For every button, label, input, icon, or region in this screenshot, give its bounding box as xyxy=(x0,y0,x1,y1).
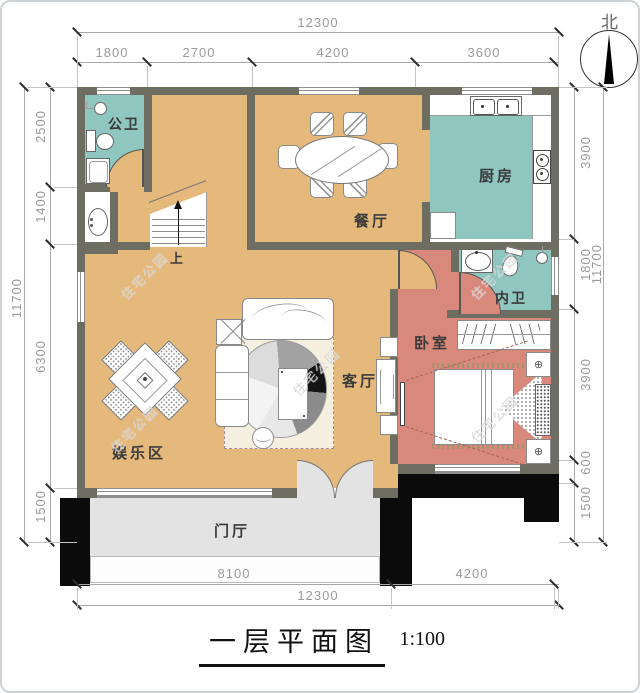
ext-line xyxy=(391,588,392,609)
dim-top-seg-0: 1800 xyxy=(82,45,142,60)
ext-line xyxy=(28,542,77,543)
window-dining-top xyxy=(299,87,359,95)
wall-ensuite-left xyxy=(451,250,459,272)
dim-top-seg-3: 3600 xyxy=(454,45,514,60)
dim-line-bottom-segments xyxy=(77,584,559,585)
dim-top-seg-1: 2700 xyxy=(169,45,229,60)
dim-line-right-total xyxy=(603,87,604,542)
nightstand-bottom: ⊕ xyxy=(526,439,551,464)
drawing-scale: 1:100 xyxy=(399,628,445,651)
ensuite-shower-stem xyxy=(542,246,543,253)
coffee-table-dot1 xyxy=(281,371,283,373)
fridge xyxy=(430,212,456,239)
dim-right-seg-2: 3900 xyxy=(578,358,593,391)
dim-line-bottom-total xyxy=(77,605,559,606)
dining-chair-2 xyxy=(343,112,367,136)
wall-bath-right xyxy=(144,95,152,192)
porch-column-mid xyxy=(380,498,412,586)
dim-line-left-segments xyxy=(50,87,51,542)
tv-cabinet-notch xyxy=(380,370,394,404)
sofa-left xyxy=(215,345,249,427)
kitchen-sink-basin-left xyxy=(473,99,495,115)
ext-line xyxy=(28,87,77,88)
washing-machine-drum xyxy=(89,161,108,183)
ext-line xyxy=(77,588,78,609)
dim-left-seg-1: 1400 xyxy=(33,190,48,223)
coffee-table-dot2 xyxy=(303,415,305,417)
dim-line-top-total xyxy=(77,32,559,33)
ext-line xyxy=(147,66,148,87)
stairs-rail xyxy=(206,192,207,247)
ensuite-sink-dot xyxy=(475,251,478,254)
pouf-line xyxy=(255,433,271,442)
wall-hall-living xyxy=(85,242,150,250)
shower-stem xyxy=(86,108,95,109)
ext-line xyxy=(554,588,555,609)
wardrobe-rail xyxy=(458,334,550,335)
ensuite-shower-head-icon xyxy=(536,252,548,264)
window-living-bottom xyxy=(97,488,272,498)
tv-cabinet-top xyxy=(380,337,398,357)
room-label-woshi: 卧室 xyxy=(414,332,450,353)
window-kitchen-top xyxy=(462,87,532,95)
porch-bar-right xyxy=(398,474,559,498)
north-needle-icon xyxy=(604,34,614,84)
ext-line xyxy=(77,36,78,87)
shower-head-icon xyxy=(94,102,107,115)
stove-burner-dot1 xyxy=(540,158,543,161)
wall-kitchen-left-upper xyxy=(422,95,430,130)
drawing-title: 一层平面图 xyxy=(199,620,385,667)
shower-stem2 xyxy=(86,102,87,109)
lamp-icon: ⊕ xyxy=(534,358,543,371)
ext-line xyxy=(559,542,607,543)
ext-line xyxy=(54,244,77,245)
dim-right-total: 11700 xyxy=(589,244,604,284)
ext-line xyxy=(559,460,574,461)
kitchen-sink-dot xyxy=(481,105,484,108)
niche-faucet-dot xyxy=(90,218,93,221)
dining-table xyxy=(295,136,389,184)
wall-bottom-left-b xyxy=(373,488,398,498)
dim-left-seg-0: 2500 xyxy=(33,110,48,143)
window-living-left xyxy=(77,272,85,322)
niche-basin xyxy=(88,208,108,236)
window-ensuite-right xyxy=(551,257,559,295)
dim-left-seg-3: 1500 xyxy=(33,490,48,523)
side-table xyxy=(216,319,242,345)
tv-cabinet-bottom xyxy=(380,415,398,435)
ext-line xyxy=(559,309,574,310)
room-label-menting: 门厅 xyxy=(214,520,250,541)
dining-chair-1 xyxy=(310,112,334,136)
wall-dining-left xyxy=(247,95,255,250)
stairs-up-label: 上 xyxy=(170,248,183,267)
window-bedroom-bottom xyxy=(435,464,520,474)
ext-line xyxy=(252,66,253,87)
room-label-keting: 客厅 xyxy=(342,370,378,391)
wall-kitchen-left-lower xyxy=(422,202,430,250)
stairs-up-arrow xyxy=(178,207,179,245)
kitchen-sink-dot2 xyxy=(506,105,509,108)
room-label-canting: 餐厅 xyxy=(354,210,390,231)
porch-stub-right xyxy=(524,498,559,522)
dim-line-right-segments xyxy=(574,87,575,542)
dim-bottom-seg-0: 8100 xyxy=(204,566,264,581)
dim-right-seg-0: 3900 xyxy=(578,136,593,169)
dim-bottom-total: 12300 xyxy=(278,588,358,603)
stairs-up-arrowhead xyxy=(174,200,182,209)
toilet-bowl xyxy=(96,133,114,150)
dim-left-seg-2: 6300 xyxy=(33,340,48,373)
lamp-icon: ⊕ xyxy=(534,445,543,458)
ext-line xyxy=(558,36,559,87)
wardrobe-strip-hatched xyxy=(535,384,551,436)
bedroom-tv xyxy=(400,382,405,426)
dim-top-seg-2: 4200 xyxy=(303,45,363,60)
dim-left-total: 11700 xyxy=(9,278,24,318)
ext-line xyxy=(415,66,416,87)
ext-line xyxy=(559,239,574,240)
ext-line xyxy=(559,87,607,88)
nightstand-top: ⊕ xyxy=(526,352,551,377)
ext-line xyxy=(559,483,574,484)
room-label-chufang: 厨房 xyxy=(479,165,515,186)
ext-line xyxy=(54,187,77,188)
toilet-tank xyxy=(86,130,96,152)
floor-plan-canvas: 上 xyxy=(0,0,640,693)
dim-bottom-seg-1: 4200 xyxy=(442,566,502,581)
room-label-gongwei: 公卫 xyxy=(108,114,140,134)
ext-line xyxy=(558,588,559,609)
dim-right-seg-3: 600 xyxy=(578,450,593,475)
niche-faucet-dot2 xyxy=(90,224,93,227)
dim-line-left-total xyxy=(24,87,25,542)
stove-burner-dot2 xyxy=(540,172,543,175)
drawing-title-row: 一层平面图 1:100 xyxy=(2,620,640,667)
ext-line xyxy=(54,488,77,489)
dim-right-seg-4: 1500 xyxy=(578,486,593,519)
window-bath-top xyxy=(97,87,130,95)
dim-top-total: 12300 xyxy=(278,15,358,30)
room-label-neiwei: 内卫 xyxy=(495,288,527,308)
